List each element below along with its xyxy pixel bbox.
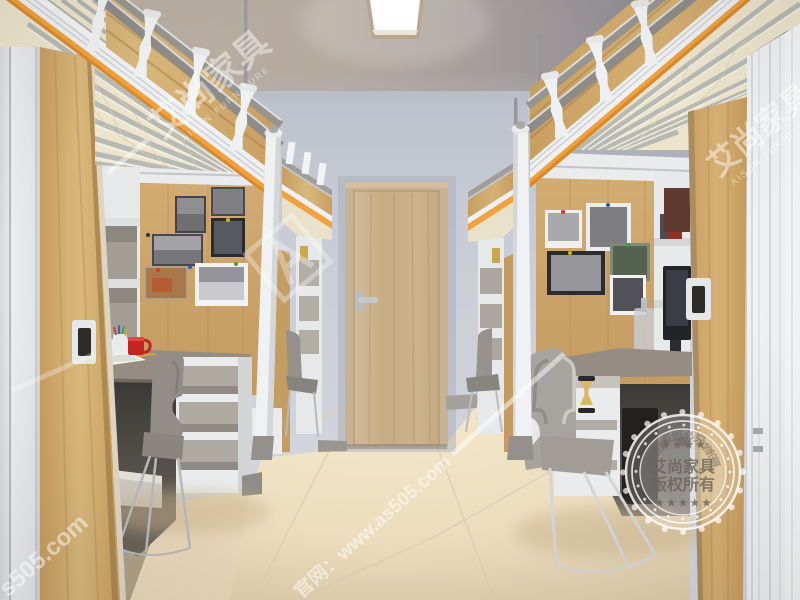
- svg-text:艾尚家具: 艾尚家具: [651, 457, 715, 476]
- svg-text:★ ★ ★ ★ ★: ★ ★ ★ ★ ★: [655, 498, 711, 509]
- svg-text:版权所有: 版权所有: [650, 475, 715, 494]
